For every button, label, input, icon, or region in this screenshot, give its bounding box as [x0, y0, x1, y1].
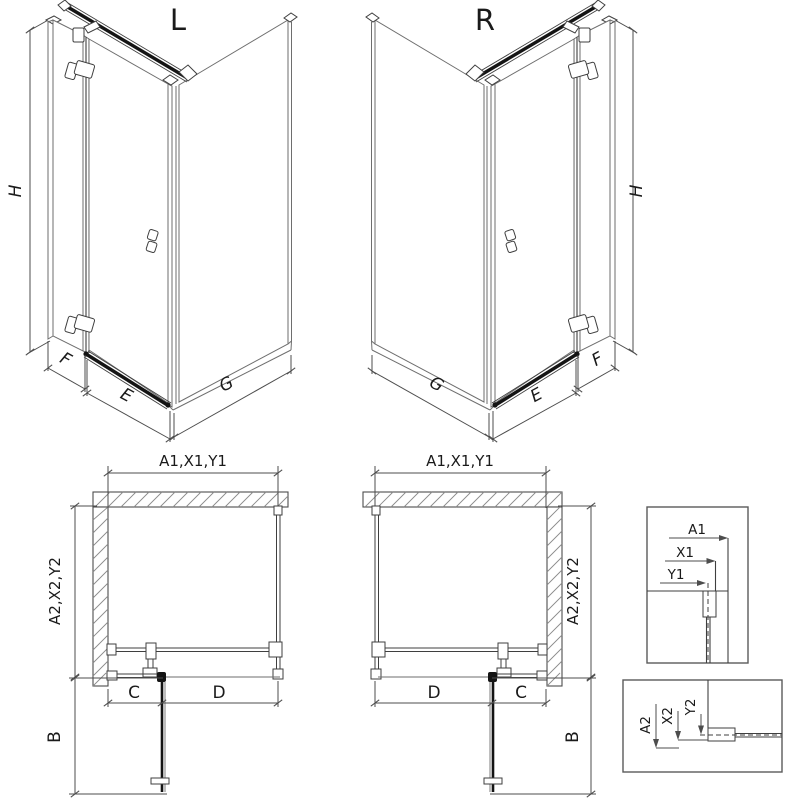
dim-label-a2x2y2-left: A2,X2,Y2 — [46, 557, 64, 625]
dim-label-b-right: B — [563, 731, 583, 743]
detail-bottom-box: A2 X2 Y2 — [623, 680, 782, 772]
dim-label-y1-detail: Y1 — [667, 567, 685, 583]
door-handle-plan — [484, 778, 502, 784]
dim-label-g-right: G — [426, 373, 447, 397]
fixed-panel-plan — [107, 671, 280, 680]
iso-right-title: R — [475, 3, 495, 37]
dim-label-c-left: C — [128, 683, 140, 703]
dim-label-g-left: G — [216, 373, 237, 397]
dim-label-f-right: F — [588, 348, 606, 370]
dim-label-e-right: E — [527, 384, 546, 407]
iso-left-geometry — [26, 0, 297, 442]
door-open-plan — [484, 672, 502, 792]
door-open-plan — [151, 672, 169, 792]
dim-label-e-left: E — [117, 384, 136, 407]
support-bar-plan — [107, 642, 282, 677]
dim-c-d: D C — [371, 681, 550, 707]
plan-left-view: A1,X1,Y1 — [45, 452, 288, 797]
fixed-panel-plan — [378, 671, 547, 680]
dim-label-y2-detail: Y2 — [683, 699, 699, 717]
dim-label-a2-detail: A2 — [638, 716, 654, 734]
wall-top — [363, 492, 562, 507]
door-pivot — [157, 672, 166, 682]
dim-door-swing-b: B — [45, 675, 167, 797]
dim-label-b-left: B — [45, 731, 65, 743]
dim-label-f-left: F — [56, 349, 74, 371]
dim-door-swing-b: B — [490, 675, 596, 797]
support-bar-plan — [372, 642, 547, 677]
dim-label-d-right: D — [427, 683, 440, 703]
door-pivot — [488, 672, 497, 682]
dim-label-a1x1y1-right: A1,X1,Y1 — [426, 452, 494, 470]
dim-label-a1x1y1-left: A1,X1,Y1 — [159, 452, 227, 470]
shower-enclosure-technical-drawing: L H F E G R H F E G — [0, 0, 800, 800]
dim-label-h-right: H — [627, 184, 647, 197]
dim-label-a1-detail: A1 — [688, 522, 706, 538]
iso-right-geometry — [366, 0, 637, 442]
detail-top-box: A1 X1 Y1 — [647, 507, 748, 663]
dim-label-h-left: H — [6, 184, 26, 197]
wall-profile-section — [703, 591, 716, 617]
dim-label-x1-detail: X1 — [676, 545, 694, 561]
door-handle-plan — [151, 778, 169, 784]
dim-label-c-right: C — [515, 683, 527, 703]
dim-c-d: C D — [104, 681, 282, 707]
plan-right-view: A1,X1,Y1 — [363, 452, 596, 797]
wall-left — [93, 507, 108, 686]
wall-right — [547, 505, 562, 686]
dim-label-x2-detail: X2 — [660, 707, 676, 725]
iso-left-title: L — [170, 3, 186, 37]
dim-label-d-left: D — [212, 683, 225, 703]
wall-top — [93, 492, 288, 507]
dim-height — [26, 19, 50, 355]
dim-label-a2x2y2-right: A2,X2,Y2 — [564, 557, 582, 625]
